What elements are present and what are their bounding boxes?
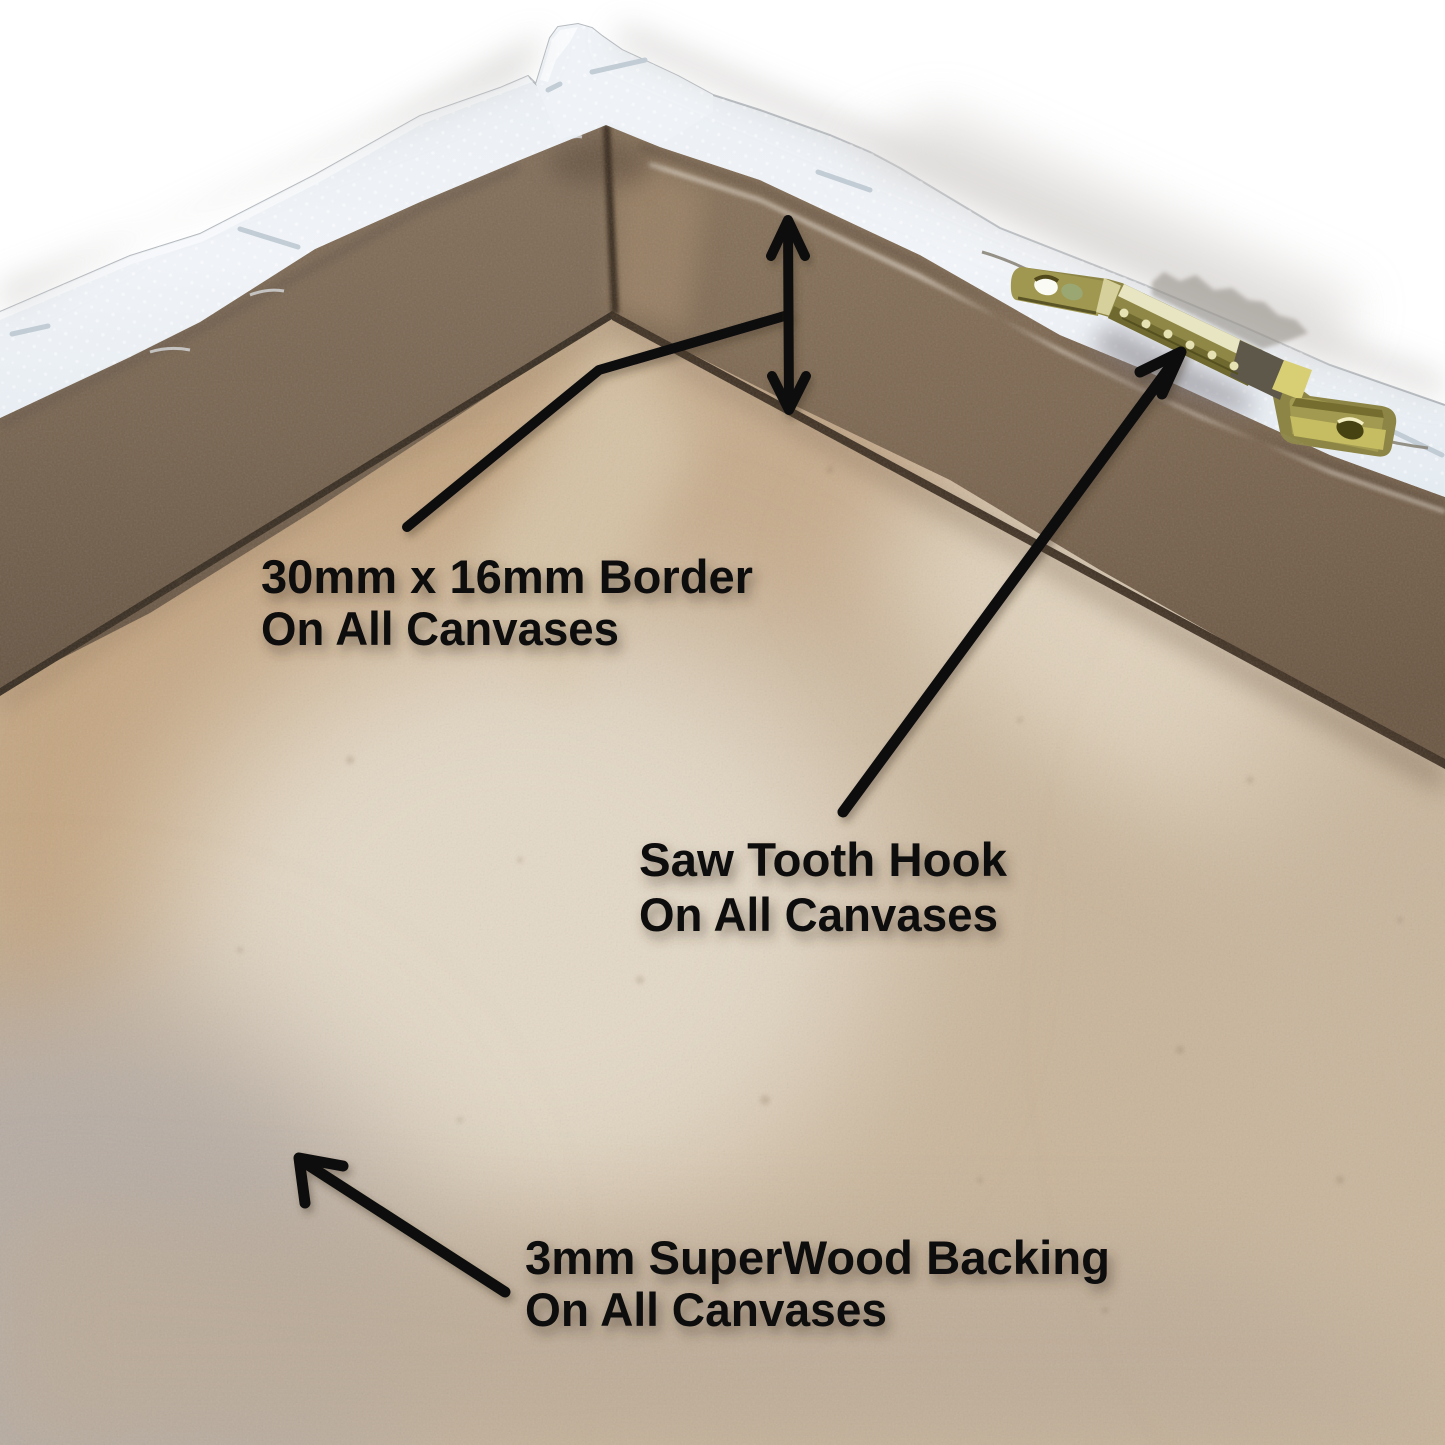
- svg-text:30mm x 16mm Border: 30mm x 16mm Border: [261, 550, 753, 603]
- svg-text:On All Canvases: On All Canvases: [525, 1283, 887, 1336]
- svg-text:On All Canvases: On All Canvases: [261, 602, 619, 655]
- svg-text:3mm SuperWood Backing: 3mm SuperWood Backing: [525, 1231, 1110, 1284]
- svg-text:On All Canvases: On All Canvases: [639, 888, 998, 941]
- svg-text:Saw Tooth Hook: Saw Tooth Hook: [639, 833, 1008, 886]
